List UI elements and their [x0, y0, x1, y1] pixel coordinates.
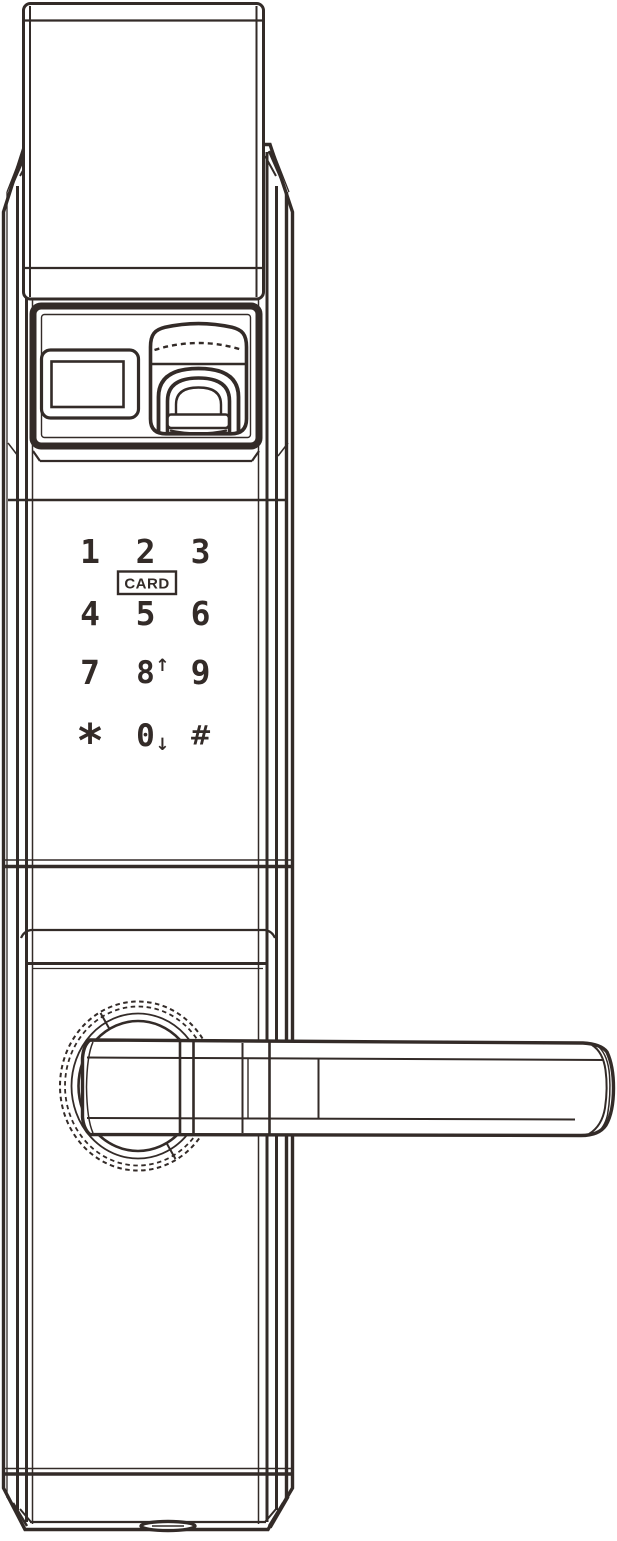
- key-2[interactable]: 2: [136, 532, 156, 571]
- asterisk-key-glyph: *: [78, 714, 102, 768]
- latch-plate-outline: [24, 4, 264, 300]
- lever-outline: [83, 1040, 614, 1136]
- key-hash[interactable]: #: [189, 721, 212, 752]
- card-reader-zone[interactable]: CARD: [118, 572, 176, 595]
- svg-text:8: 8: [136, 655, 155, 691]
- svg-text:6: 6: [191, 594, 211, 633]
- up-arrow-icon: ↑: [155, 656, 169, 676]
- key-1[interactable]: 1: [80, 532, 100, 571]
- svg-text:0: 0: [136, 718, 155, 754]
- door-lock-drawing: 1 2 3 CARD 4 5 6 7 8 ↑ 9 * 0 ↓ #: [0, 0, 617, 1541]
- sensor-base: [168, 415, 230, 429]
- card-zone-label: CARD: [124, 576, 169, 593]
- down-arrow-icon: ↓: [155, 735, 169, 755]
- svg-text:9: 9: [191, 653, 211, 692]
- fingerprint-reader[interactable]: [151, 324, 247, 434]
- key-7[interactable]: 7: [80, 653, 100, 692]
- sensor-panel: [33, 306, 259, 446]
- key-3[interactable]: 3: [191, 532, 211, 571]
- key-9[interactable]: 9: [191, 653, 211, 692]
- bottom-port: [141, 1521, 195, 1530]
- svg-text:1: 1: [80, 532, 100, 571]
- key-star[interactable]: *: [78, 714, 102, 768]
- key-6[interactable]: 6: [191, 594, 211, 633]
- svg-text:2: 2: [136, 532, 156, 571]
- svg-text:5: 5: [136, 594, 156, 633]
- lever-handle[interactable]: [83, 1040, 614, 1136]
- svg-text:3: 3: [191, 532, 211, 571]
- hash-key-glyph: #: [189, 721, 212, 752]
- key-4[interactable]: 4: [80, 594, 100, 633]
- svg-text:4: 4: [80, 594, 100, 633]
- top-latch-plate: [24, 4, 264, 300]
- key-5[interactable]: 5: [136, 594, 156, 633]
- svg-text:7: 7: [80, 653, 100, 692]
